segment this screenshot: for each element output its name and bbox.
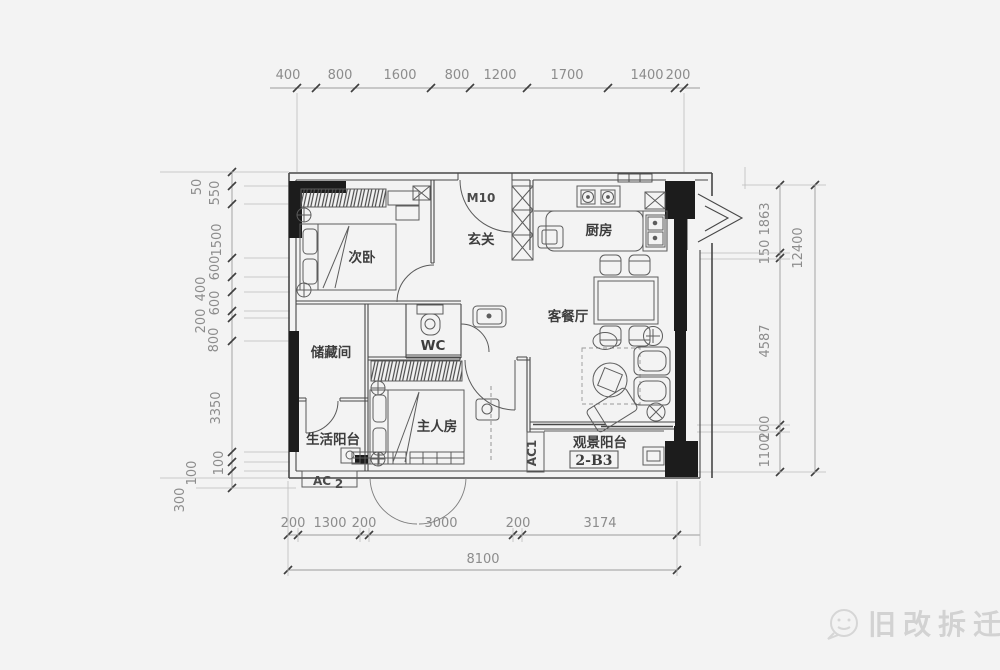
dimension-label: 800: [207, 328, 222, 353]
dimension-label: 800: [445, 68, 470, 83]
dimension-label: 200: [666, 68, 691, 83]
dimension-label: 1100: [758, 434, 773, 467]
room-label-kitchen: 厨房: [586, 222, 613, 239]
room-label-entry: 玄关: [468, 231, 495, 248]
ac-niche-label: AC1: [525, 440, 539, 466]
dimension-label: 3174: [583, 516, 616, 531]
dimension-label: 1700: [550, 68, 583, 83]
room-label-wc: WC: [421, 338, 446, 354]
dimension-label: 12400: [791, 227, 806, 268]
wardrobe: [371, 361, 462, 381]
door-code-label: M10: [467, 191, 496, 205]
side-table: [644, 327, 663, 346]
dimension-label: 1400: [630, 68, 663, 83]
room-label-living-dining: 客餐厅: [547, 308, 589, 325]
dimension-label: 300: [173, 488, 188, 513]
watermark-text: 旧改拆迁: [868, 608, 1000, 641]
column: [674, 426, 686, 442]
room-label-life-balcony: 生活阳台: [306, 431, 360, 448]
dimension-label: 1863: [758, 202, 773, 235]
room-label-storage: 储藏间: [310, 344, 352, 361]
column: [674, 219, 687, 331]
column: [665, 441, 698, 477]
wardrobe: [301, 189, 386, 207]
page-background: [0, 0, 1000, 666]
dimension-label: 600: [208, 291, 223, 316]
dimension-label: 600: [208, 256, 223, 281]
dimension-label: 100: [212, 451, 227, 476]
floor-plan-drawing: 4008001600800120017001400200200130020030…: [0, 0, 1000, 666]
dimension-label: 1200: [483, 68, 516, 83]
dimension-label: 50: [190, 179, 205, 196]
dimension-label: 3350: [209, 391, 224, 424]
dimension-label: 1600: [383, 68, 416, 83]
dimension-label: 800: [328, 68, 353, 83]
dimension-label: 1300: [313, 516, 346, 531]
dimension-label: 150: [758, 240, 773, 265]
room-label-view-balcony: 观景阳台: [573, 434, 627, 451]
dimension-label: 8100: [466, 552, 499, 567]
dimension-label: 100: [185, 461, 200, 486]
dimension-label: 400: [194, 277, 209, 302]
dimension-label: 4587: [758, 324, 773, 357]
ac-platform-label: AC: [313, 474, 331, 488]
room-label-master: 主人房: [417, 418, 458, 435]
dimension-label: 200: [506, 516, 531, 531]
column: [289, 331, 299, 452]
room-label-bedroom2: 次卧: [349, 249, 376, 266]
dimension-label: 200: [281, 516, 306, 531]
dimension-label: 550: [208, 181, 223, 206]
dimension-label: 400: [276, 68, 301, 83]
unit-code-label: 2-B3: [575, 453, 612, 469]
column: [665, 181, 695, 219]
dimension-label: 1500: [210, 223, 225, 256]
ac-platform-sub-label: 2: [335, 477, 343, 491]
column: [675, 331, 686, 426]
dimension-label: 200: [352, 516, 377, 531]
